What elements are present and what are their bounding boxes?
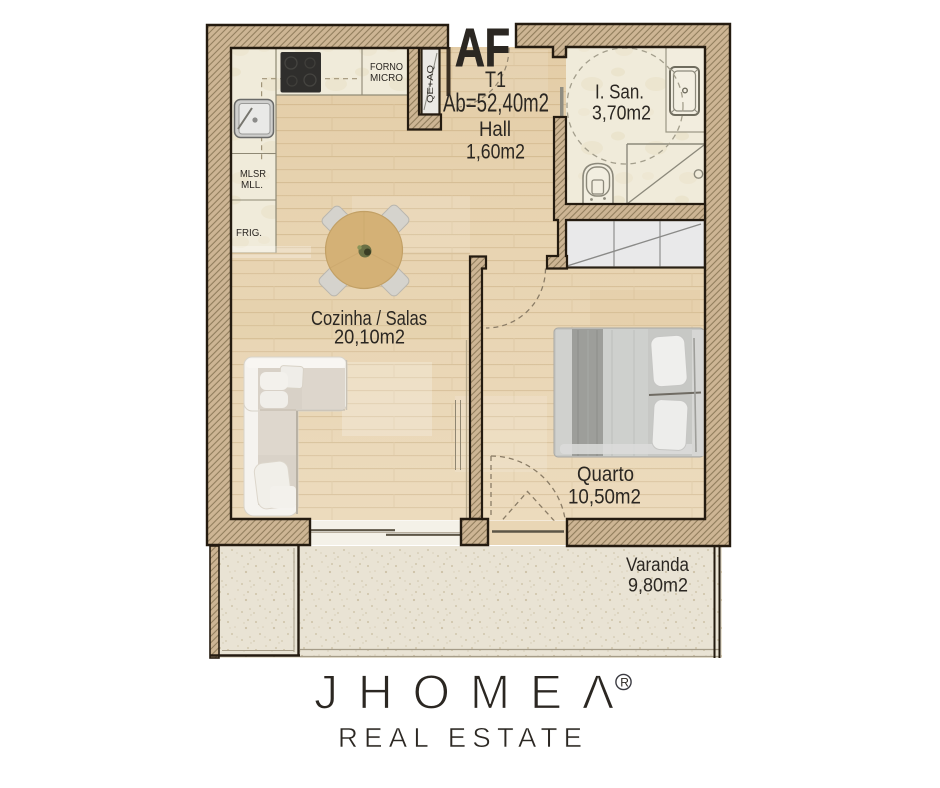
svg-text:10,50m2: 10,50m2 bbox=[568, 486, 641, 509]
svg-text:MICRO: MICRO bbox=[370, 73, 403, 84]
svg-text:20,10m2: 20,10m2 bbox=[334, 327, 405, 349]
svg-text:Varanda: Varanda bbox=[626, 555, 689, 576]
svg-text:3,70m2: 3,70m2 bbox=[592, 103, 651, 125]
svg-text:FRIG.: FRIG. bbox=[236, 228, 262, 239]
svg-text:Ab=52,40m2: Ab=52,40m2 bbox=[443, 88, 549, 118]
svg-text:I. San.: I. San. bbox=[595, 82, 644, 104]
svg-text:9,80m2: 9,80m2 bbox=[628, 576, 688, 597]
svg-text:FORNO: FORNO bbox=[370, 62, 403, 73]
svg-text:R: R bbox=[620, 676, 629, 690]
svg-text:Hall: Hall bbox=[479, 118, 511, 141]
svg-text:MLL.: MLL. bbox=[241, 180, 263, 191]
svg-text:1,60m2: 1,60m2 bbox=[466, 141, 525, 164]
svg-text:QE+AQ: QE+AQ bbox=[426, 65, 435, 103]
svg-text:REAL ESTATE: REAL ESTATE bbox=[338, 722, 582, 753]
svg-text:JHOMEΛ: JHOMEΛ bbox=[314, 667, 614, 720]
svg-text:Quarto: Quarto bbox=[577, 463, 634, 486]
svg-text:MLSR: MLSR bbox=[240, 169, 266, 180]
